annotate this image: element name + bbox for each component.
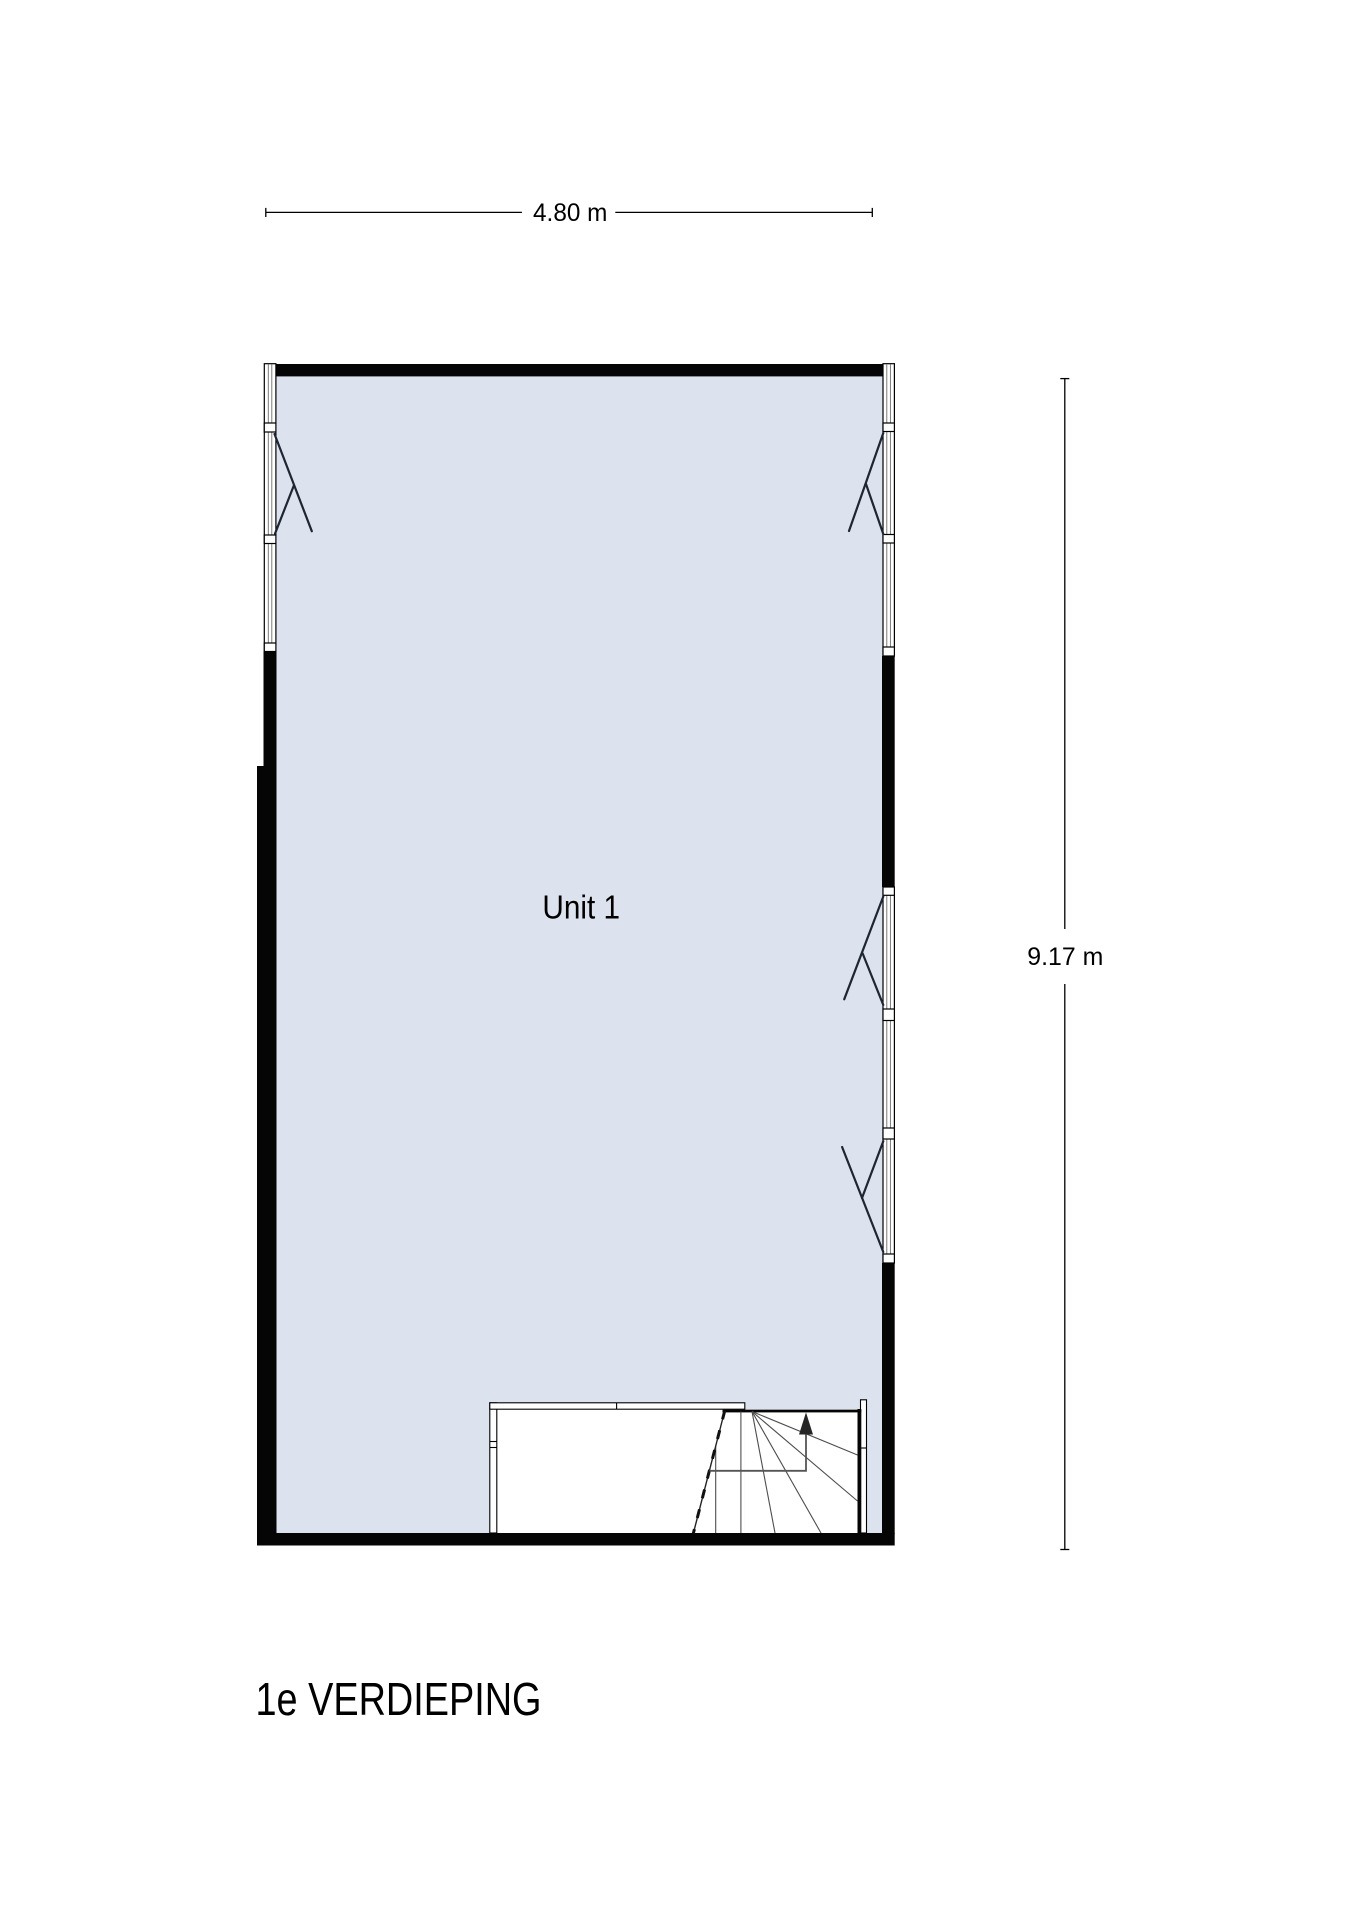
svg-text:1e VERDIEPING: 1e VERDIEPING (256, 1673, 542, 1725)
svg-text:9.17 m: 9.17 m (1027, 943, 1103, 971)
svg-text:Unit 1: Unit 1 (542, 889, 620, 926)
svg-text:4.80 m: 4.80 m (533, 199, 607, 227)
